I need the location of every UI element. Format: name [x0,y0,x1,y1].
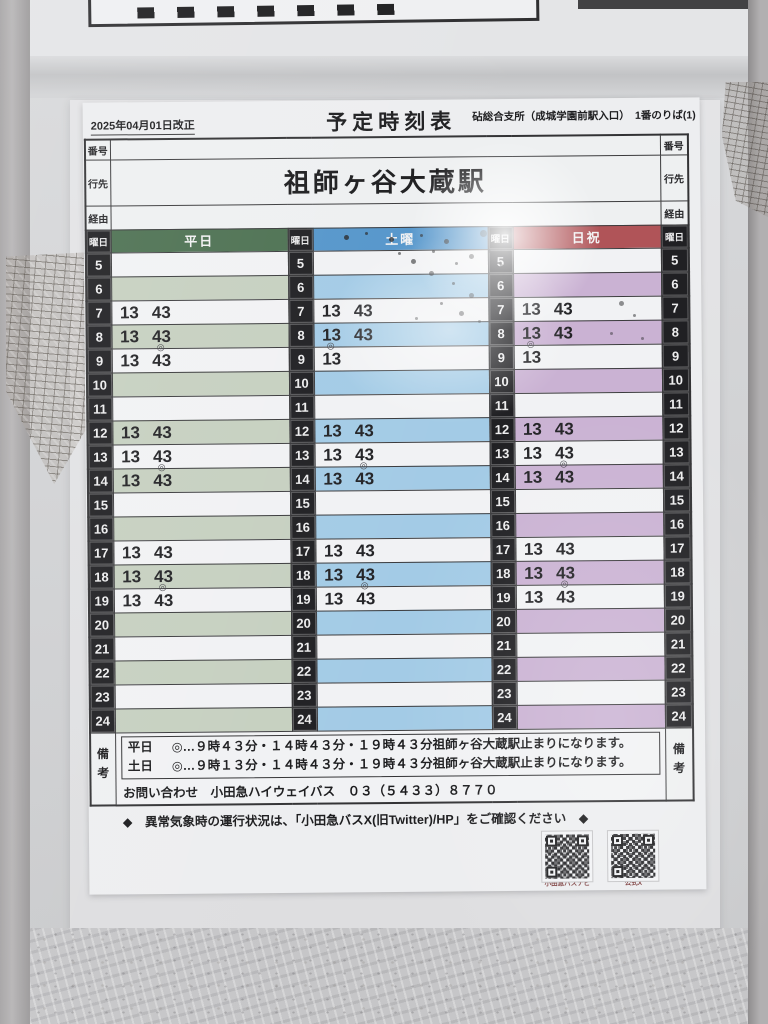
wall-left [0,0,30,1024]
row-label-day: 曜日 [661,224,689,247]
hour-cell: 8 [661,319,689,343]
time-value: 43 [554,324,573,341]
time-value: 13 [322,302,341,319]
time-value: 43 [356,542,375,559]
saturday-times-17: 1343 [315,537,490,563]
weekday-times-20 [114,611,291,637]
row-label-number-right: 番号 [660,134,688,154]
weekday-times-18: 1343 [114,563,291,589]
saturday-times-21 [316,633,491,659]
hour-cell: 7 [86,300,111,324]
hour-cell: 15 [663,487,691,511]
terminus-ring-icon: ◎ [158,462,166,471]
hour-cell: 22 [491,657,516,681]
row-label-via-left: 経由 [85,205,110,229]
column-header-sunday: 日祝 [513,225,661,249]
weekday-times-21 [114,635,291,661]
time-value: 13◎ [322,350,341,367]
hour-cell: 21 [291,635,316,659]
time-value: 13 [323,470,342,487]
hour-cell: 6 [488,273,513,297]
hour-cell: 22 [291,659,316,683]
row-label-destination-left: 行先 [85,159,110,205]
hour-cell: 12 [87,420,112,444]
terminus-notes-box: 平日◎…９時４３分・１４時４３分・１９時４３分祖師ヶ谷大蔵駅止まりになります。土… [121,731,660,779]
hour-cell: 16 [490,513,515,537]
hour-cell: 23 [90,684,115,708]
hour-cell: 15 [490,489,515,513]
time-value: 43◎ [555,468,574,485]
hour-cell: 8 [488,321,513,345]
column-header-weekday: 平日 [111,228,288,253]
hour-cell: 11 [87,396,112,420]
sunday-times-21 [516,632,664,657]
saturday-times-7: 1343 [313,297,488,323]
saturday-times-24 [317,705,492,731]
saturday-times-14: 1343◎ [315,465,490,491]
hour-cell: 9 [289,347,314,371]
destination-value: 祖師ヶ谷大蔵駅 [110,155,660,206]
hour-cell: 13 [490,441,515,465]
hour-cell: 12 [489,417,514,441]
time-value: 13 [121,448,140,465]
hour-cell: 24 [492,705,517,729]
time-value: 13 [122,592,141,609]
hour-cell: 17 [88,540,113,564]
saturday-times-16 [315,513,490,539]
hour-cell: 6 [86,276,111,300]
saturday-times-5 [313,249,488,275]
time-value: 13 [324,542,343,559]
time-value: 13◎ [522,348,541,365]
qr-code-busnavi: 小田急バスナビ [542,835,592,889]
hour-cell: 14 [490,465,515,489]
qr-label: 公式X [608,881,658,888]
hour-cell: 17 [290,539,315,563]
row-label-destination-right: 行先 [660,154,688,200]
row-label-via-right: 経由 [660,200,688,224]
time-value: 13 [121,424,140,441]
sunday-times-9: 13◎ [514,344,662,369]
hour-cell: 18 [89,564,114,588]
weekday-times-6 [111,275,288,301]
hour-cell: 20 [89,612,114,636]
hour-cell: 14 [290,467,315,491]
sunday-times-5 [513,248,661,273]
saturday-times-19: 1343◎ [316,585,491,611]
terminus-ring-icon: ◎ [561,579,569,588]
saturday-times-10 [314,369,489,395]
time-value: 43 [555,420,574,437]
hour-cell: 22 [664,655,692,679]
weekday-times-8: 1343 [111,323,288,349]
time-value: 13 [524,564,543,581]
hour-cell: 16 [663,511,691,535]
time-value: 13 [323,446,342,463]
sunday-times-7: 1343 [513,296,661,321]
timetable-paper: 2025年04月01日改正 予定時刻表 砧総合支所（成城学園前駅入口） 1番のり… [83,97,707,894]
terminus-ring-icon: ◎ [157,343,165,352]
hour-cell: 24 [90,708,115,732]
saturday-times-22 [316,657,491,683]
time-value: 43 [354,302,373,319]
hour-cell: 16 [88,516,113,540]
hour-cell: 18 [664,559,692,583]
qr-row: 小田急バスナビ公式X [89,834,658,892]
saturday-times-20 [316,609,491,635]
hour-cell: 6 [288,275,313,299]
terminus-ring-icon: ◎ [327,341,335,350]
sunday-times-11 [514,392,662,417]
sunday-times-14: 1343◎ [515,464,663,489]
row-label-remarks-left: 備考 [90,732,116,805]
weekday-times-13: 1343 [113,443,290,469]
weekday-times-17: 1343 [113,539,290,565]
hour-cell: 23 [665,679,693,703]
hour-cell: 18 [291,563,316,587]
hour-cell: 8 [86,324,111,348]
qr-label: 小田急バスナビ [542,882,592,889]
qr-finder-square [612,835,623,846]
hour-cell: 12 [662,415,690,439]
qr-finder-square [546,836,557,847]
weekday-times-22 [114,659,291,685]
weathered-texture [30,928,748,1024]
weekday-times-12: 1343 [112,419,289,445]
weekday-times-10 [112,371,289,397]
time-value: 13 [120,304,139,321]
time-value: 13 [122,568,141,585]
note-day-label: 土日 [128,757,172,777]
hour-cell: 5 [86,252,111,276]
saturday-times-18: 1343 [316,561,491,587]
case-ledge [30,56,748,98]
hour-cell: 19 [664,583,692,607]
note-text: ◎…９時１３分・１４時４３分・１９時４３分祖師ヶ谷大蔵駅止まりになります。 [172,753,632,776]
hour-cell: 10 [87,372,112,396]
hour-cell: 20 [491,609,516,633]
hour-cell: 24 [292,707,317,731]
weekday-times-23 [115,683,292,709]
hour-cell: 23 [492,681,517,705]
photo-scene: 2025年04月01日改正 予定時刻表 砧総合支所（成城学園前駅入口） 1番のり… [0,0,768,1024]
hour-cell: 21 [491,633,516,657]
qr-image [611,834,655,878]
time-value: 43 [354,326,373,343]
hour-cell: 24 [665,703,693,727]
hour-cell: 7 [661,295,689,319]
upper-sign-bar [578,0,748,9]
hour-cell: 5 [288,251,313,275]
time-value: 43 [554,300,573,317]
hour-cell: 19 [89,588,114,612]
hour-cell: 7 [288,299,313,323]
sunday-times-15 [515,488,663,513]
hour-cell: 13 [88,444,113,468]
sunday-times-8: 1343 [513,320,661,345]
time-value: 13 [524,540,543,557]
weekday-times-19: 1343◎ [114,587,291,613]
sunday-times-17: 1343 [515,536,663,561]
hour-cell: 20 [664,607,692,631]
weekday-times-11 [112,395,289,421]
time-value: 43◎ [154,591,173,608]
row-label-day: 曜日 [288,228,313,251]
time-value: 13 [120,328,139,345]
remarks-row: 備考 平日◎…９時４３分・１４時４３分・１９時４３分祖師ヶ谷大蔵駅止まりになりま… [90,727,694,806]
sunday-times-16 [515,512,663,537]
saturday-times-6 [313,273,488,299]
saturday-times-23 [317,681,492,707]
timetable-hours: 5555666671343713437134378134381343813438… [86,247,693,732]
time-value: 43◎ [356,590,375,607]
weekday-times-16 [113,515,290,541]
time-value: 43◎ [152,351,171,368]
hour-cell: 16 [290,515,315,539]
row-label-remarks-right: 備考 [665,727,694,800]
contact-info: お問い合わせ 小田急ハイウェイバス ０３（５４３３）８７７０ [123,778,658,802]
time-value: 13 [324,590,343,607]
stop-info: 砧総合支所（成城学園前駅入口） 1番のりば(1) [472,107,696,124]
saturday-times-8: 1343 [313,321,488,347]
time-value: 13 [522,300,541,317]
qr-image [545,835,589,879]
hour-cell: 21 [664,631,692,655]
hour-cell: 14 [88,468,113,492]
terminus-ring-icon: ◎ [527,339,535,348]
hour-cell: 12 [289,419,314,443]
time-value: 13 [324,566,343,583]
upper-sign-box [88,0,540,27]
qr-finder-square [577,836,588,847]
sunday-times-22 [516,656,664,681]
qr-finder-square [612,866,623,877]
remarks-body: 平日◎…９時４３分・１４時４３分・１９時４３分祖師ヶ谷大蔵駅止まりになります。土… [115,728,666,806]
time-value: 13 [323,422,342,439]
saturday-times-9: 13◎ [314,345,489,371]
sunday-times-24 [517,704,665,729]
time-value: 13 [523,420,542,437]
weekday-times-5 [111,251,288,277]
qr-code-official-x: 公式X [608,834,658,888]
hour-cell: 14 [663,463,691,487]
time-value: 13 [524,588,543,605]
saturday-times-13: 1343 [315,441,490,467]
qr-finder-square [546,867,557,878]
sunday-times-13: 1343 [515,440,663,465]
sunday-times-23 [517,680,665,705]
hour-cell: 19 [491,585,516,609]
hour-cell: 20 [291,611,316,635]
terminus-ring-icon: ◎ [159,582,167,591]
hour-cell: 13 [663,439,691,463]
time-value: 13 [122,544,141,561]
weekday-times-15 [113,491,290,517]
hour-cell: 11 [289,395,314,419]
sunday-times-19: 1343◎ [516,584,664,609]
weekday-times-9: 1343◎ [112,347,289,373]
time-value: 13 [121,472,140,489]
hour-cell: 15 [88,492,113,516]
saturday-times-12: 1343 [314,417,489,443]
time-value: 43 [152,303,171,320]
row-label-day: 曜日 [86,229,111,252]
hour-cell: 9 [489,345,514,369]
hour-cell: 9 [87,348,112,372]
upper-sign-marks [137,4,395,19]
time-value: 43 [556,540,575,557]
time-value: 43 [154,543,173,560]
terminus-ring-icon: ◎ [560,459,568,468]
sunday-times-6 [513,272,661,297]
time-value: 43◎ [153,471,172,488]
time-value: 43 [153,423,172,440]
time-value: 13 [523,444,542,461]
paper-header: 2025年04月01日改正 予定時刻表 砧総合支所（成城学園前駅入口） 1番のり… [83,97,700,138]
column-header-saturday: 土曜 [313,226,488,251]
row-label-day: 曜日 [488,226,513,249]
sunday-times-20 [516,608,664,633]
time-value: 43 [355,422,374,439]
hour-cell: 5 [661,247,689,271]
hour-cell: 5 [488,249,513,273]
hour-cell: 10 [289,371,314,395]
hour-cell: 17 [663,535,691,559]
hour-cell: 8 [288,323,313,347]
time-value: 43◎ [355,470,374,487]
sunday-times-12: 1343 [514,416,662,441]
hour-cell: 18 [491,561,516,585]
time-value: 43◎ [556,588,575,605]
hour-cell: 13 [290,443,315,467]
weather-note: ◆ 異常気象時の運行状況は、「小田急バスX(旧Twitter)/HP」をご確認く… [123,807,706,831]
hour-cell: 10 [662,367,690,391]
weekday-times-24 [115,707,292,733]
row-label-number-left: 番号 [85,139,110,159]
hour-cell: 10 [489,369,514,393]
destination-row: 行先 祖師ヶ谷大蔵駅 行先 [85,154,688,205]
time-value: 13 [523,468,542,485]
hour-cell: 21 [89,636,114,660]
weekday-times-14: 1343◎ [113,467,290,493]
sunday-times-18: 1343 [516,560,664,585]
hour-cell: 15 [290,491,315,515]
time-value: 13 [120,352,139,369]
weekday-times-7: 1343 [111,299,288,325]
hour-cell: 11 [662,391,690,415]
saturday-times-15 [315,489,490,515]
sunday-times-10 [514,368,662,393]
hour-cell: 6 [661,271,689,295]
note-day-label: 平日 [128,737,172,757]
qr-finder-square [643,835,654,846]
terminus-ring-icon: ◎ [360,461,368,470]
hour-cell: 17 [490,537,515,561]
hour-cell: 7 [488,297,513,321]
timetable: 番号 番号 行先 祖師ヶ谷大蔵駅 行先 経由 経由 曜日 平日 曜日 土曜 曜日… [84,133,695,807]
hour-cell: 23 [292,683,317,707]
upper-sign-partial [30,0,748,56]
hour-cell: 19 [291,587,316,611]
terminus-ring-icon: ◎ [361,581,369,590]
hour-cell: 9 [662,343,690,367]
saturday-times-11 [314,393,489,419]
hour-cell: 22 [89,660,114,684]
terminus-note-line: 土日◎…９時１３分・１４時４３分・１９時４３分祖師ヶ谷大蔵駅止まりになります。 [128,753,653,777]
hour-cell: 11 [489,393,514,417]
